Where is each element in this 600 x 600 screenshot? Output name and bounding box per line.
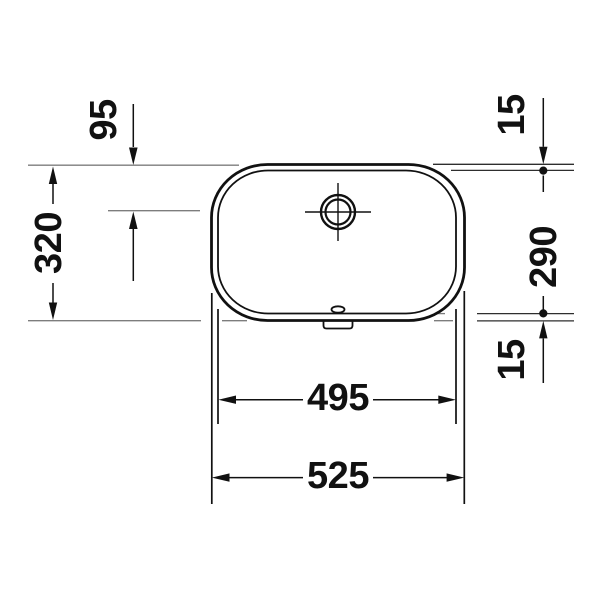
dim-495-arrow-right [438,396,456,404]
dim-290-dot [539,309,547,317]
dim-95-arrow-down [129,148,138,166]
dim-95-arrow-up [129,212,138,230]
basin-inner-bowl [218,171,456,314]
dim-320-arrow-down [49,303,57,321]
faucet-hole [305,183,371,241]
dimension-95 [129,104,138,281]
dim-label-15-top: 15 [493,94,531,135]
dimension-15-top [539,98,547,175]
dim-525-arrow-left [212,473,230,481]
reference-lines-gray [28,165,453,321]
dim-525-arrow-right [447,473,465,481]
overflow-hole [332,306,345,312]
dim-label-495: 495 [307,379,369,417]
dimension-15-bottom [539,321,547,383]
dim-15-top-dot [539,167,547,175]
dim-15-bottom-arrow-up [539,321,547,339]
dim-label-95: 95 [85,99,123,140]
technical-drawing-canvas [0,0,600,600]
dim-495-arrow-left [218,396,236,404]
overflow [324,306,353,328]
dim-label-525: 525 [307,457,369,495]
dim-label-15-bottom: 15 [493,339,531,380]
dim-label-290: 290 [525,226,563,288]
dim-15-top-arrow-down [539,147,547,165]
dim-label-320: 320 [30,212,68,274]
dim-320-arrow-up [49,167,57,185]
technical-drawing-page: 95 320 15 290 15 495 525 [0,0,600,600]
